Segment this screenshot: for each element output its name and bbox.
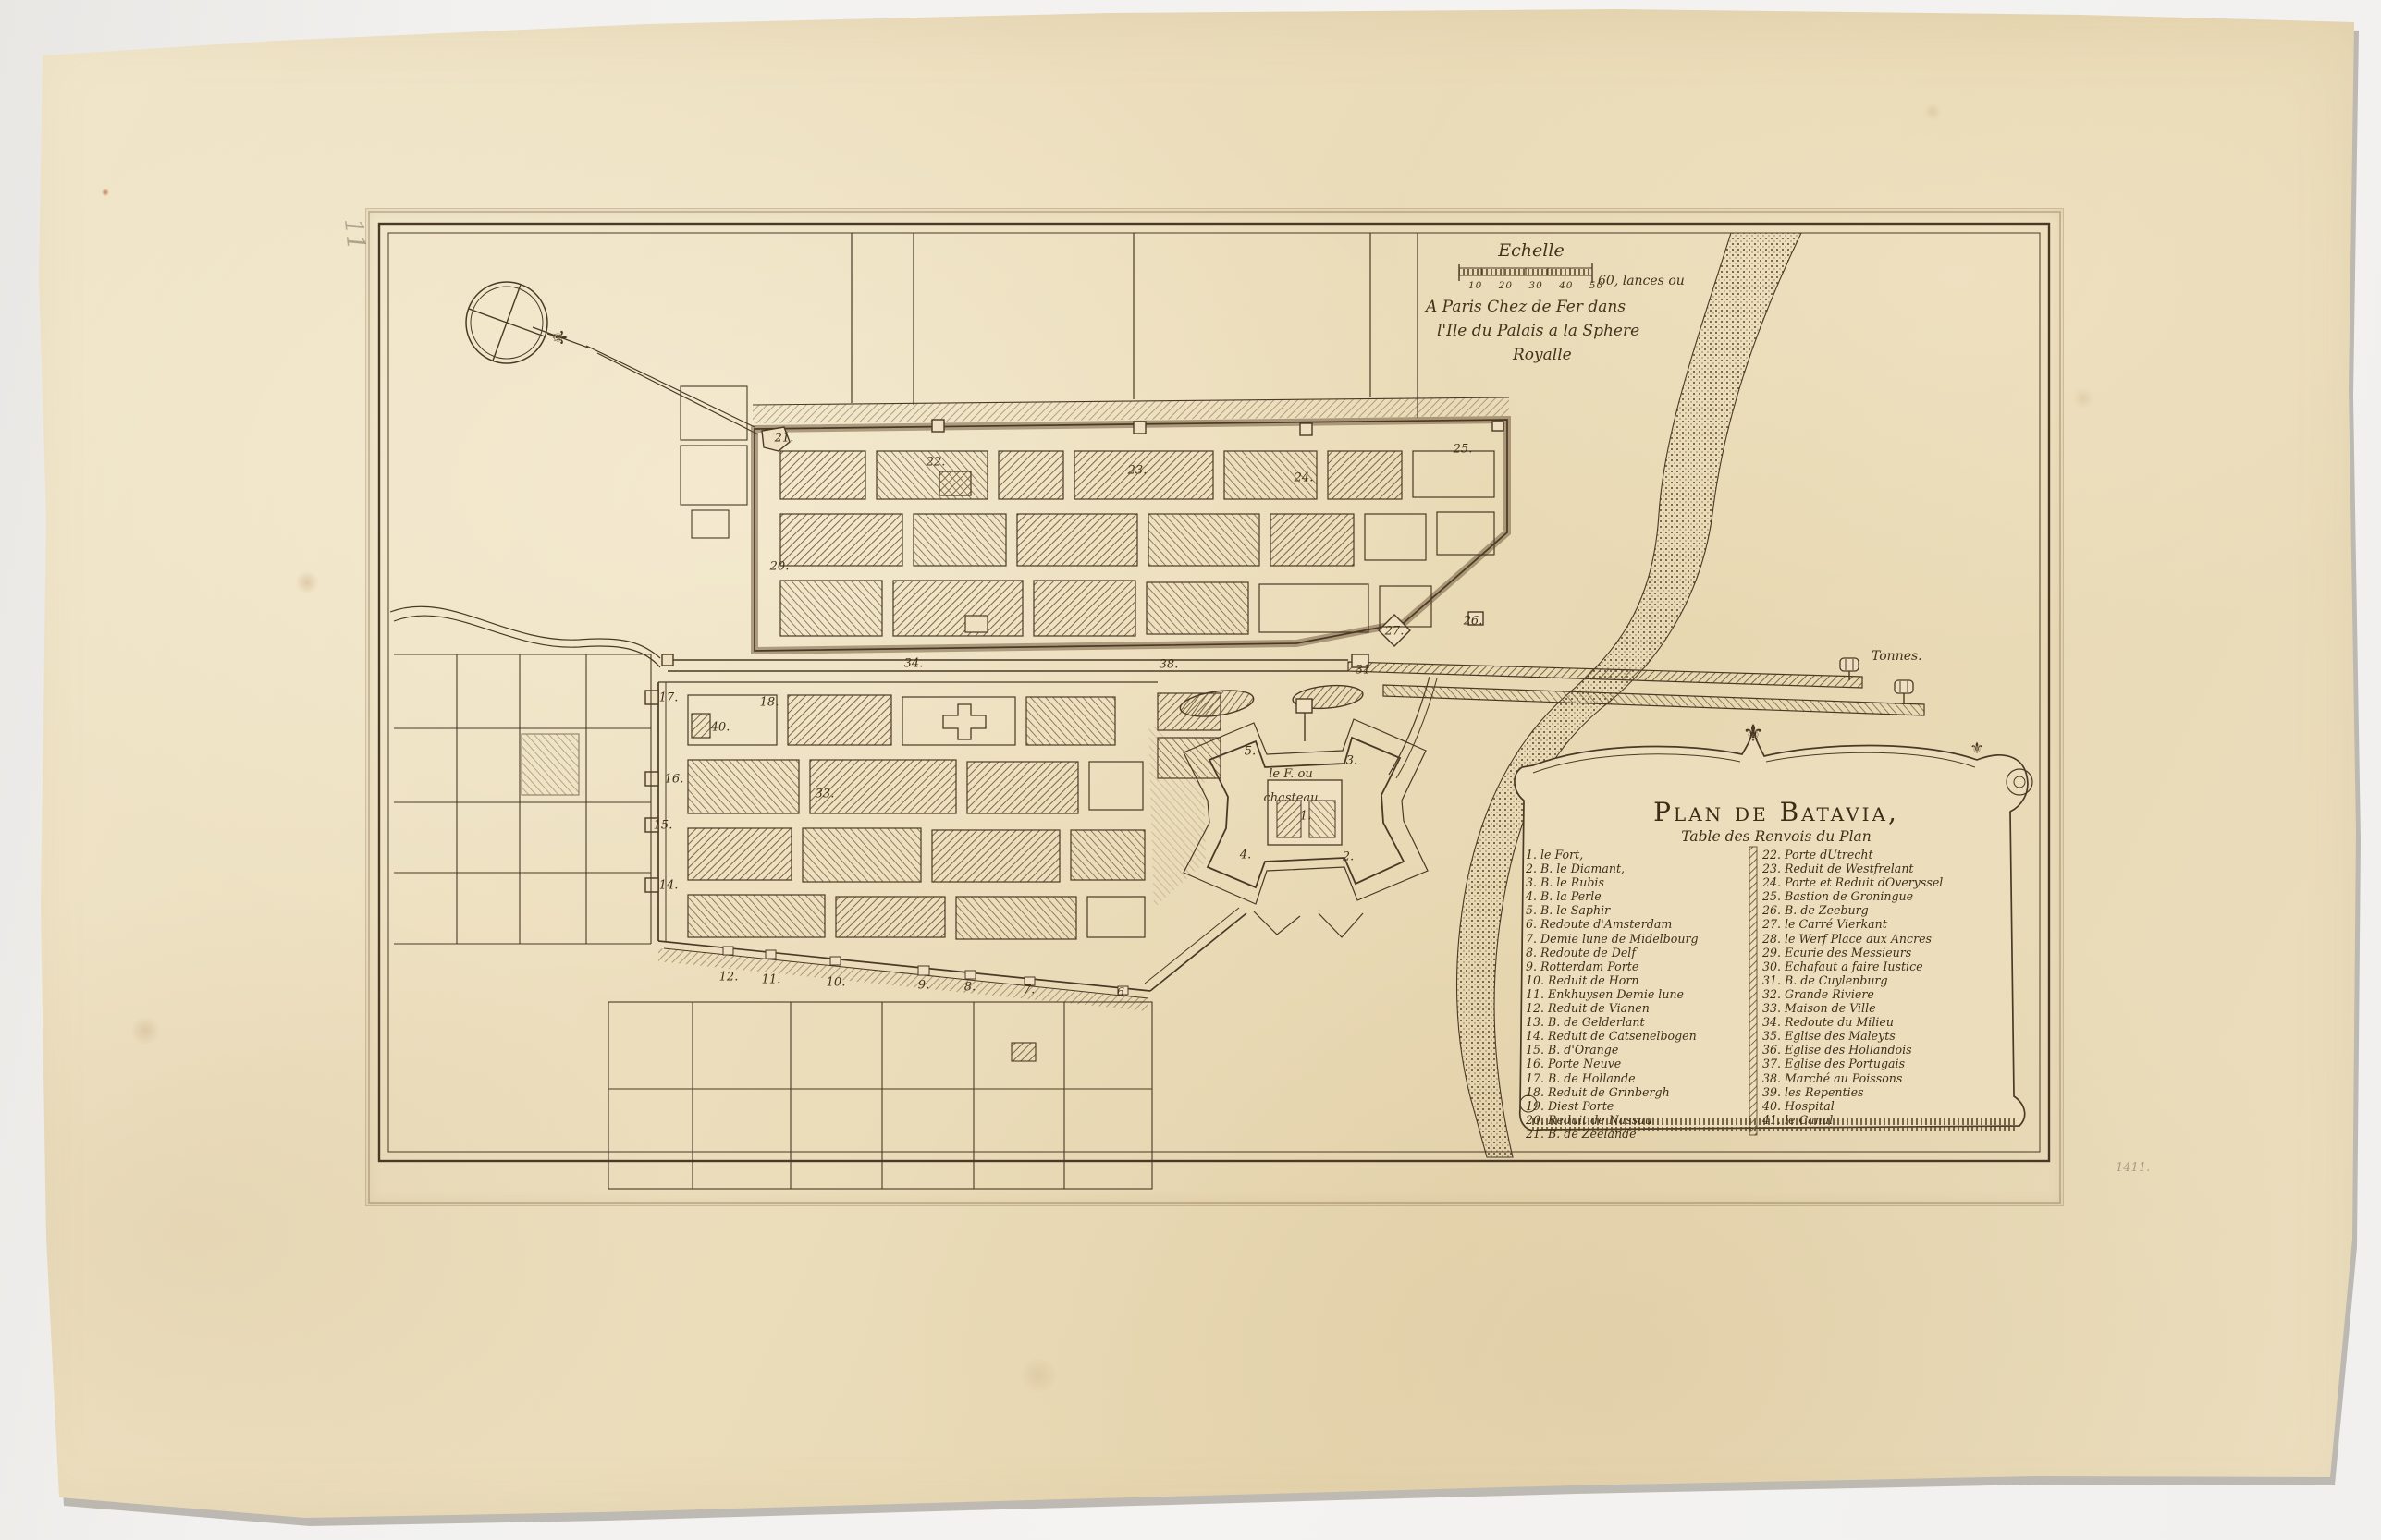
- map-number-label: 15.: [654, 819, 673, 833]
- foxing-spot: [294, 571, 320, 593]
- map-number-label: 7.: [1024, 984, 1035, 997]
- map-number-label: 2.: [1343, 850, 1354, 864]
- map-number-label: 6.: [1117, 986, 1128, 1000]
- foxing-spot: [1017, 1359, 1060, 1392]
- foxing-spot: [2071, 388, 2095, 409]
- map-number-label: 14.: [659, 879, 679, 893]
- map-number-label: 18.: [760, 696, 779, 710]
- foxing-spot: [129, 1017, 161, 1045]
- map-number-label: 21.: [775, 432, 794, 446]
- map-number-markers: 21.22.23.24.25.20.26.27.3134.38.17.18.40…: [366, 209, 2063, 1205]
- map-number-label: 10.: [827, 976, 846, 990]
- photograph-of-antique-map: 11 1411.: [0, 0, 2381, 1540]
- map-number-label: 26.: [1464, 615, 1483, 629]
- map-number-label: 1.: [1300, 810, 1311, 824]
- plate-impression: Echelle 10 20 30 40 50 60, lances ou A P…: [365, 208, 2064, 1206]
- map-number-label: 8.: [964, 981, 976, 995]
- map-number-label: 12.: [719, 971, 739, 984]
- paper-sheet: 11 1411.: [0, 0, 2381, 1540]
- pencil-inventory-mark: 1411.: [2116, 1161, 2150, 1175]
- map-number-label: 4.: [1240, 849, 1251, 862]
- map-number-label: 9.: [918, 979, 929, 993]
- map-number-label: 38.: [1160, 658, 1179, 672]
- map-number-label: 22.: [927, 456, 946, 470]
- map-number-label: 33.: [816, 788, 835, 801]
- map-number-label: 40.: [711, 721, 730, 735]
- map-number-label: 17.: [659, 691, 679, 705]
- map-number-label: 23.: [1128, 464, 1148, 478]
- map-number-label: 34.: [904, 657, 924, 671]
- map-number-label: 24.: [1295, 471, 1314, 485]
- map-number-label: 16.: [665, 773, 684, 787]
- map-number-label: 31: [1356, 664, 1371, 678]
- map-number-label: 25.: [1454, 443, 1473, 457]
- foxing-spot: [1923, 104, 1942, 120]
- map-number-label: 27.: [1385, 625, 1405, 639]
- map-number-label: 5.: [1245, 745, 1256, 759]
- map-number-label: 3.: [1346, 754, 1357, 768]
- map-number-label: 20.: [770, 560, 790, 574]
- map-number-label: 11.: [762, 973, 781, 987]
- foxing-spot: [102, 189, 109, 196]
